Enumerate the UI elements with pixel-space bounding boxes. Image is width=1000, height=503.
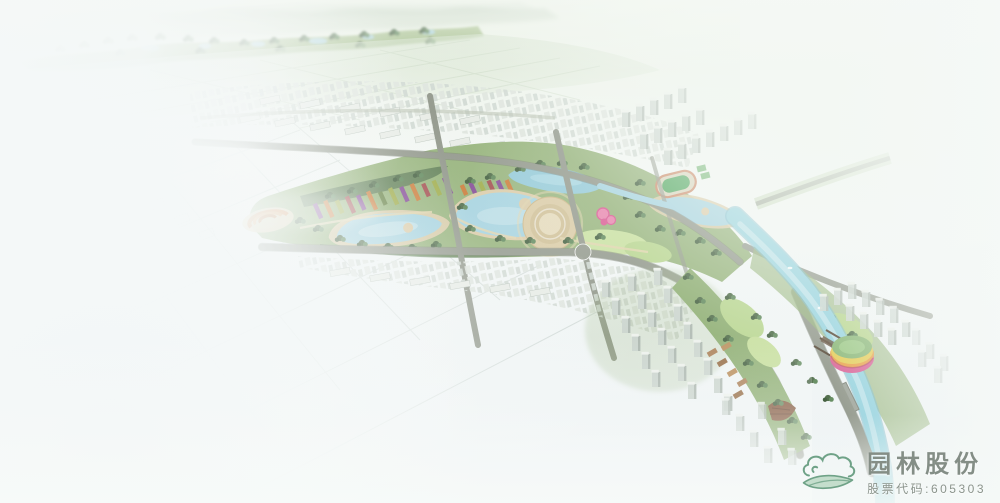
mist-overlay [0, 0, 1000, 503]
cloud-leaf-logo-icon [799, 447, 857, 495]
stock-code: 股票代码:605303 [867, 480, 986, 497]
masterplan-rendering-page: 园林股份 股票代码:605303 [0, 0, 1000, 503]
logo: 园林股份 股票代码:605303 [799, 447, 986, 497]
aerial-masterplan-rendering [0, 0, 1000, 503]
company-name: 园林股份 [867, 452, 986, 477]
